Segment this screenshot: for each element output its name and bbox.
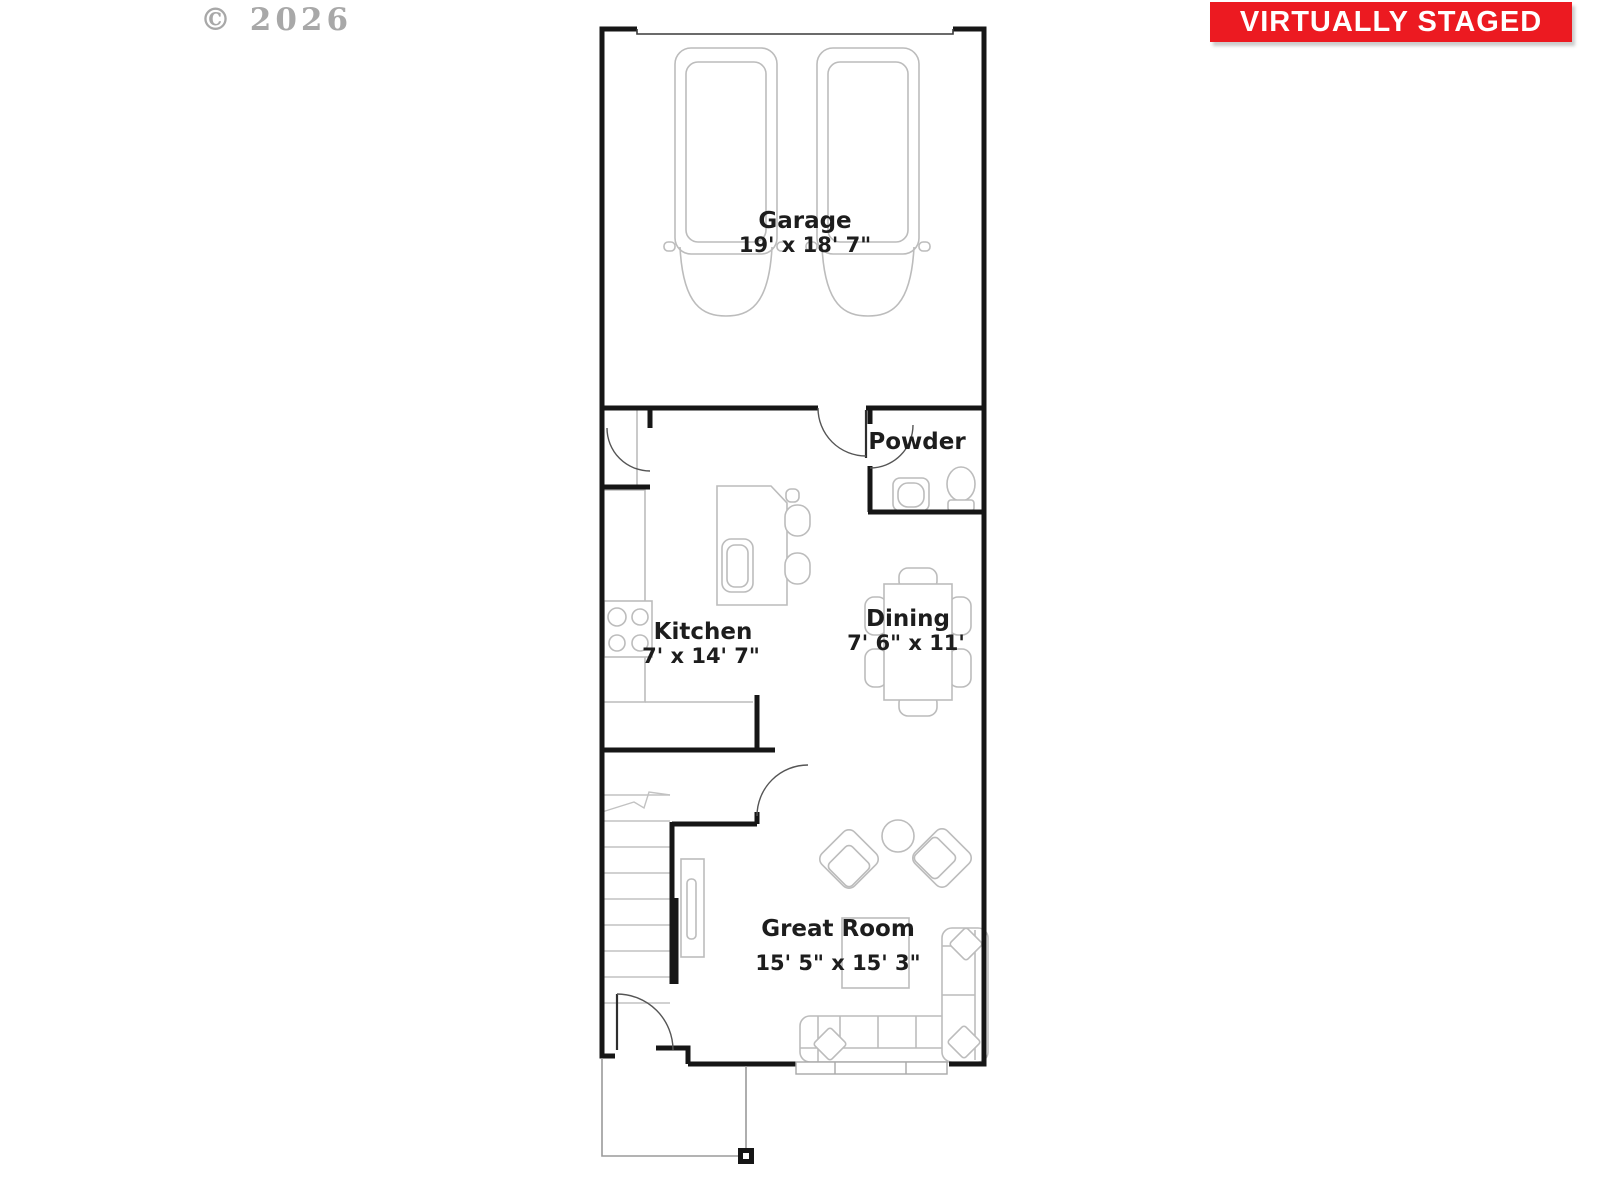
- garage-dims: 19' x 18' 7": [739, 233, 871, 257]
- garage-door: [637, 29, 953, 34]
- powder-toilet-icon: [947, 467, 975, 511]
- great-room-dims: 15' 5" x 15' 3": [755, 951, 920, 975]
- great-room-window: [796, 1062, 947, 1074]
- garage-car-left-icon: [664, 48, 788, 316]
- dining-label: Dining: [866, 606, 950, 632]
- media-console-icon: [681, 859, 704, 957]
- closet-door: [607, 428, 650, 471]
- floor-plan-page: © 2026 VIRTUALLY STAGED: [0, 0, 1600, 1200]
- kitchen-island: [717, 486, 810, 605]
- kitchen-dims: 7' x 14' 7": [642, 644, 760, 668]
- accent-chair-left-icon: [816, 826, 881, 891]
- staircase: [602, 792, 670, 1003]
- garage-label: Garage: [758, 208, 851, 234]
- kitchen-label: Kitchen: [654, 619, 753, 645]
- powder-label: Powder: [868, 429, 966, 455]
- porch: [602, 1058, 754, 1164]
- great-room-label: Great Room: [761, 916, 915, 942]
- hall-door: [757, 765, 808, 816]
- walls: [602, 29, 984, 1064]
- round-side-table-icon: [882, 820, 914, 852]
- garage-car-right-icon: [806, 48, 930, 316]
- powder-sink-icon: [893, 478, 929, 511]
- floor-plan-drawing: Garage 19' x 18' 7" Powder Kitchen 7' x …: [0, 0, 1600, 1200]
- accent-chair-right-icon: [909, 825, 974, 890]
- dining-dims: 7' 6" x 11': [847, 631, 965, 655]
